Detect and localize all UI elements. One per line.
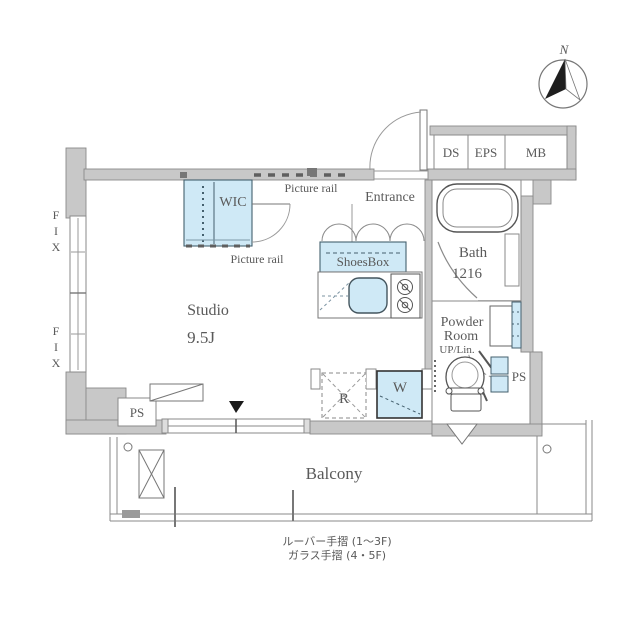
balcony-sill	[122, 510, 140, 518]
kitchen-counter	[318, 272, 422, 318]
bath-niche	[505, 234, 519, 286]
refrigerator-label: R	[339, 391, 349, 407]
powder-room: Powder Room UP/Lin. PS	[432, 301, 530, 444]
studio-room-label: Studio	[187, 302, 229, 319]
washer-space: W	[377, 371, 422, 418]
bath-label: Bath	[459, 245, 488, 261]
wic-room: WIC	[184, 180, 252, 246]
ps-right-box-upper	[491, 357, 508, 374]
shoes-box-label: ShoesBox	[337, 254, 390, 269]
shaft-mb-label: MB	[526, 145, 547, 160]
picture-rail-bracket-icon	[307, 168, 317, 176]
desk-icon	[150, 384, 203, 401]
bath-size-label: 1216	[452, 266, 483, 282]
entrance-label: Entrance	[365, 190, 415, 205]
powder-room-label-1: Powder	[441, 315, 484, 330]
drain-icon-left	[124, 443, 132, 451]
svg-text:I: I	[54, 224, 58, 238]
studio-size-label: 9.5J	[187, 328, 215, 347]
shaft-ds-label: DS	[443, 145, 460, 160]
powder-room-label-2: Room	[444, 329, 478, 344]
door-stop-icon	[180, 172, 187, 178]
refrigerator-space: R	[322, 373, 366, 418]
bathtub-icon	[437, 184, 518, 232]
equipment-box-icon	[139, 450, 164, 498]
floorplan-canvas: N DS EPS MB F I X F I X WIC	[0, 0, 640, 640]
svg-text:F: F	[53, 324, 60, 338]
shaft-eps-label: EPS	[475, 145, 497, 160]
ps-right-box-lower	[491, 376, 508, 392]
picture-rail-top-label: Picture rail	[285, 181, 339, 195]
picture-rail-bottom-label: Picture rail	[231, 252, 285, 266]
drain-icon-right	[543, 445, 551, 453]
washer-label: W	[393, 380, 408, 396]
ps-left-label: PS	[130, 405, 144, 420]
svg-text:I: I	[54, 340, 58, 354]
ps-right-label: PS	[512, 369, 526, 384]
bath-room: Bath 1216	[432, 180, 521, 301]
floorplan-drawing: N DS EPS MB F I X F I X WIC	[0, 0, 640, 640]
balcony-label: Balcony	[306, 464, 363, 483]
svg-text:X: X	[52, 356, 61, 370]
handrail-note-2: ガラス手摺 (4・5F)	[288, 548, 386, 562]
compass-north-label: N	[559, 42, 570, 57]
handrail-note-1: ルーバー手摺 (1〜3F)	[282, 534, 391, 548]
sink-icon	[349, 278, 387, 313]
stove-icon	[391, 274, 420, 318]
wic-label: WIC	[219, 195, 246, 210]
powder-room-label-3: UP/Lin.	[439, 344, 474, 356]
svg-text:F: F	[53, 208, 60, 222]
mirror-cabinet-icon	[512, 302, 521, 348]
fix-window	[70, 216, 86, 372]
sliding-door	[162, 419, 310, 433]
svg-text:X: X	[52, 240, 61, 254]
shaft-boxes: DS EPS MB	[434, 135, 567, 169]
washbasin-icon	[490, 306, 513, 346]
